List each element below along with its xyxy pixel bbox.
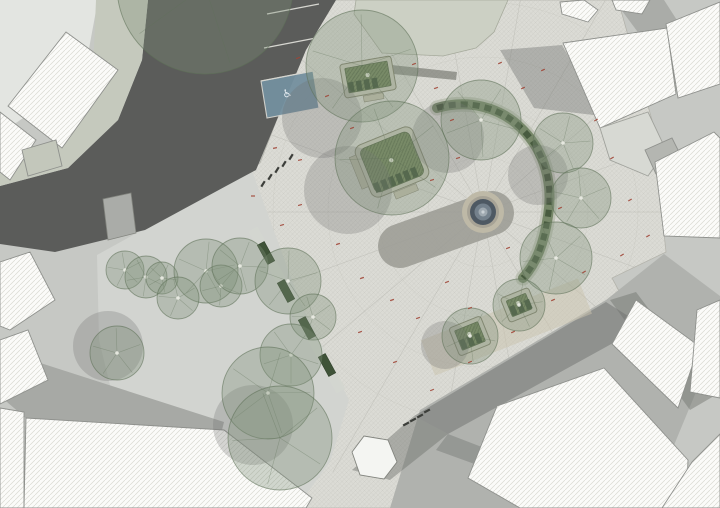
tree-trunk xyxy=(479,118,483,122)
plan-layers: ♿ xyxy=(0,0,720,508)
tree-canopy xyxy=(335,101,449,215)
tree-canopy xyxy=(493,279,545,331)
tree-canopy xyxy=(157,277,199,319)
site-plan-drawing: ♿ xyxy=(0,0,720,508)
tree-canopy xyxy=(228,386,332,490)
site-plan: ♿ xyxy=(0,0,720,508)
tree-trunk xyxy=(311,315,315,319)
tree-trunk xyxy=(579,196,583,200)
tree-canopy xyxy=(90,326,144,380)
tree-trunk xyxy=(160,276,164,280)
tree-trunk xyxy=(238,264,242,268)
building xyxy=(0,408,24,508)
survey-mark xyxy=(251,195,255,196)
tree-trunk xyxy=(517,303,521,307)
tree-trunk xyxy=(176,296,180,300)
fountain xyxy=(462,191,504,233)
tree-trunk xyxy=(468,334,472,338)
bus-platform xyxy=(103,193,136,240)
tree-canopy xyxy=(442,308,498,364)
tree-trunk xyxy=(554,256,558,260)
tree-trunk xyxy=(286,279,290,283)
tree-canopy xyxy=(551,168,611,228)
tree-canopy xyxy=(533,113,593,173)
tree-trunk xyxy=(561,141,565,145)
tree-trunk xyxy=(115,351,119,355)
fountain-ring xyxy=(481,210,484,213)
